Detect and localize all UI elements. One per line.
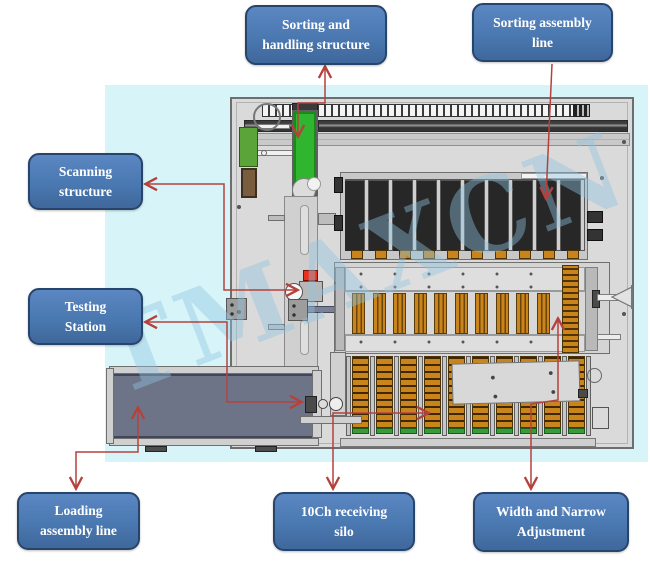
column-pin-1 bbox=[268, 215, 285, 221]
diagram-canvas: TMAXCN Sorting and handling structure So… bbox=[0, 0, 650, 570]
label-sorting-handling: Sorting and handling structure bbox=[245, 5, 387, 65]
silo-divider bbox=[442, 356, 447, 436]
plate-circle bbox=[587, 368, 602, 383]
right-outline-box bbox=[592, 407, 609, 429]
tester-dark-block bbox=[305, 396, 317, 413]
label-scanning: Scanning structure bbox=[28, 153, 143, 210]
silo-green bbox=[352, 428, 369, 434]
silo-stack bbox=[376, 356, 393, 428]
tester-bracket bbox=[300, 416, 362, 424]
tester-wheel-large bbox=[329, 397, 343, 411]
silo-green bbox=[496, 428, 513, 434]
silo-divider bbox=[346, 356, 351, 436]
label-line: handling structure bbox=[247, 35, 385, 55]
label-line: Scanning bbox=[30, 162, 141, 182]
panel-dot bbox=[261, 150, 267, 156]
label-line: assembly line bbox=[19, 521, 138, 541]
label-silo: 10Ch receiving silo bbox=[273, 492, 415, 551]
silo-green bbox=[472, 428, 489, 434]
label-line: Loading bbox=[19, 501, 138, 521]
label-line: structure bbox=[30, 182, 141, 202]
mid-bottom-band bbox=[345, 335, 585, 352]
sorter-foot bbox=[567, 250, 579, 259]
silo-base-bar bbox=[340, 438, 596, 447]
label-line: silo bbox=[275, 522, 413, 542]
belt-roller-small bbox=[307, 177, 321, 191]
silo-green bbox=[424, 428, 441, 434]
label-loading: Loading assembly line bbox=[17, 492, 140, 550]
label-line: Sorting assembly bbox=[474, 13, 611, 33]
label-line: Testing bbox=[30, 297, 141, 317]
silo-stack bbox=[424, 356, 441, 428]
left-brown-unit bbox=[241, 168, 257, 198]
mid-stick-group bbox=[496, 293, 509, 334]
adjuster-cone bbox=[608, 284, 634, 310]
conveyor-foot-1 bbox=[145, 446, 167, 452]
label-line: 10Ch receiving bbox=[275, 502, 413, 522]
adjuster-rod-lower bbox=[597, 334, 621, 340]
label-width-adjust: Width and Narrow Adjustment bbox=[473, 492, 629, 552]
mid-stick-group bbox=[475, 293, 488, 334]
silo-green bbox=[568, 428, 585, 434]
mid-stick-group bbox=[455, 293, 468, 334]
left-green-unit bbox=[239, 127, 258, 167]
sorter-conn-l1 bbox=[334, 177, 343, 193]
silo-green bbox=[520, 428, 537, 434]
mid-stick-group bbox=[537, 293, 550, 334]
right-orange-stack bbox=[562, 265, 579, 353]
label-line: Width and Narrow bbox=[475, 502, 627, 522]
silo-green bbox=[544, 428, 561, 434]
mid-stick-group bbox=[516, 293, 529, 334]
silo-green bbox=[376, 428, 393, 434]
silo-stack bbox=[400, 356, 417, 428]
label-line: line bbox=[474, 33, 611, 53]
silo-divider bbox=[394, 356, 399, 436]
label-line: Sorting and bbox=[247, 15, 385, 35]
conveyor-foot-2 bbox=[255, 446, 277, 452]
label-line: Station bbox=[30, 317, 141, 337]
conveyor-rail-bottom bbox=[109, 438, 319, 446]
screw-1 bbox=[237, 205, 241, 209]
label-line: Adjustment bbox=[475, 522, 627, 542]
silo-divider bbox=[370, 356, 375, 436]
label-testing: Testing Station bbox=[28, 288, 143, 345]
screw-4 bbox=[622, 312, 626, 316]
silo-green bbox=[448, 428, 465, 434]
tester-wheel-small bbox=[318, 399, 328, 409]
cover-plate bbox=[451, 360, 580, 404]
plate-small-block bbox=[578, 389, 588, 398]
silo-green bbox=[400, 428, 417, 434]
label-sorting-line: Sorting assembly line bbox=[472, 3, 613, 62]
silo-divider bbox=[418, 356, 423, 436]
